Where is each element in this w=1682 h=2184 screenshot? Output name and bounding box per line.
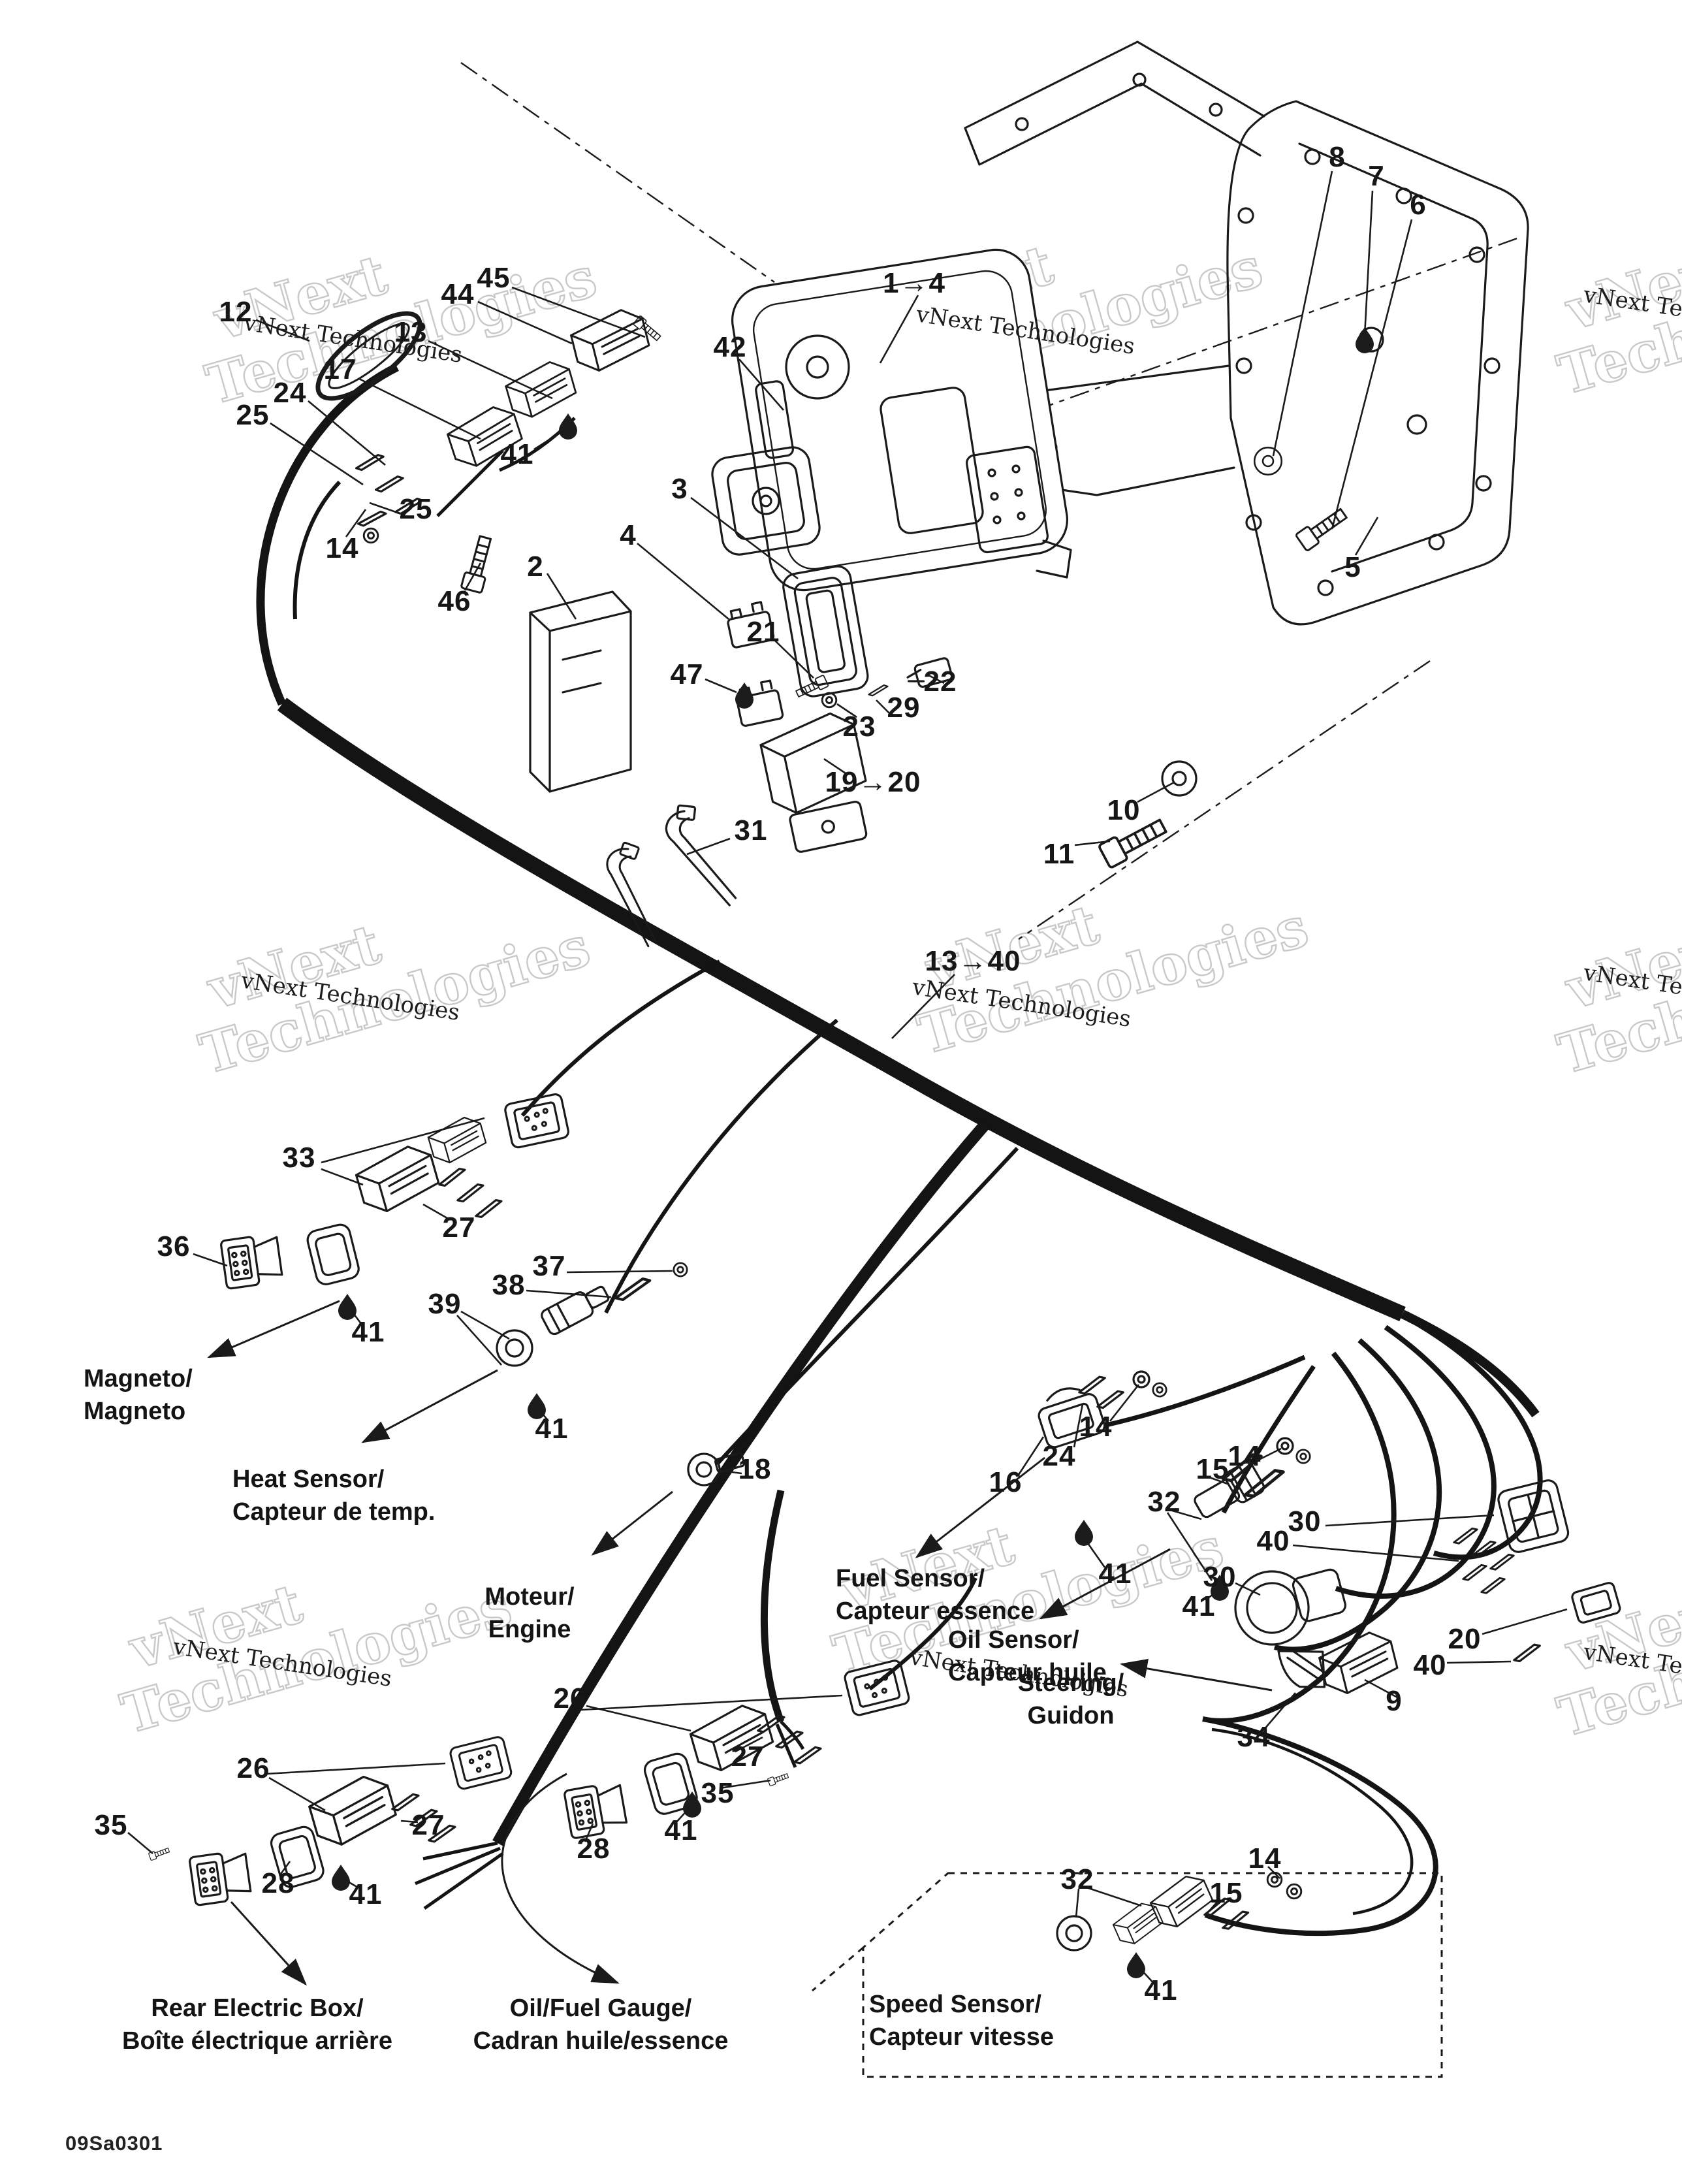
terminal-29 bbox=[867, 684, 889, 697]
callout-24: 24 bbox=[274, 377, 307, 409]
callout-12: 12 bbox=[219, 296, 253, 329]
label-magneto-line1: Magneto/ bbox=[84, 1362, 193, 1395]
callout-2: 2 bbox=[527, 551, 543, 583]
callout-21: 21 bbox=[747, 616, 780, 649]
connector-30-round bbox=[1227, 1554, 1350, 1652]
grease-drop-41f bbox=[1075, 1520, 1093, 1546]
callout-41s: 41 bbox=[1145, 1974, 1178, 2007]
rear-box-plate-28 bbox=[189, 1850, 251, 1905]
callout-3: 3 bbox=[671, 473, 688, 506]
rear-box-connector-26 bbox=[306, 1771, 400, 1850]
label-fuel-sensor: Fuel Sensor/ Capteur essence bbox=[836, 1562, 1034, 1628]
callout-8: 8 bbox=[1329, 141, 1345, 174]
callout-40b: 40 bbox=[1414, 1649, 1447, 1682]
callout-20: 20 bbox=[1448, 1623, 1482, 1656]
label-rear-electric-box-line1: Rear Electric Box/ bbox=[122, 1992, 392, 2025]
rear-box-cover bbox=[449, 1736, 513, 1790]
callout-46: 46 bbox=[438, 585, 471, 618]
label-fuel-sensor-line2: Capteur essence bbox=[836, 1595, 1034, 1628]
callout-14: 14 bbox=[326, 532, 359, 565]
label-engine: Moteur/ Engine bbox=[484, 1581, 574, 1646]
callout-15: 15 bbox=[1196, 1453, 1230, 1486]
label-rear-electric-box: Rear Electric Box/ Boîte électrique arri… bbox=[122, 1992, 392, 2057]
callout-35r: 35 bbox=[95, 1809, 128, 1842]
seal-33 bbox=[306, 1223, 360, 1286]
callout-34: 34 bbox=[1237, 1721, 1271, 1754]
callout-47: 47 bbox=[671, 658, 704, 691]
callout-31: 31 bbox=[735, 814, 768, 847]
label-engine-line1: Moteur/ bbox=[484, 1581, 574, 1613]
washer-8 bbox=[1254, 447, 1282, 475]
callout-38: 38 bbox=[492, 1269, 526, 1302]
washer-10 bbox=[1162, 762, 1196, 795]
label-heat-sensor: Heat Sensor/ Capteur de temp. bbox=[232, 1463, 435, 1528]
connector-33b bbox=[426, 1114, 488, 1166]
callout-4: 4 bbox=[620, 519, 636, 552]
callout-19-20: 19→20 bbox=[825, 766, 921, 799]
callout-44: 44 bbox=[441, 278, 475, 311]
label-heat-sensor-line1: Heat Sensor/ bbox=[232, 1463, 435, 1496]
callout-22: 22 bbox=[924, 666, 957, 698]
grease-drop-47 bbox=[735, 682, 754, 709]
bolt-6 bbox=[1295, 505, 1349, 551]
callout-14s: 14 bbox=[1248, 1842, 1282, 1875]
callout-27r: 27 bbox=[412, 1809, 445, 1842]
callout-36: 36 bbox=[157, 1230, 191, 1263]
nut-37 bbox=[674, 1263, 687, 1276]
terminal-40 bbox=[1512, 1643, 1542, 1663]
callout-28r: 28 bbox=[262, 1867, 295, 1900]
callout-14b: 14 bbox=[1228, 1440, 1261, 1473]
callout-13: 13 bbox=[394, 316, 428, 349]
callout-33: 33 bbox=[283, 1142, 316, 1174]
exploded-parts-diagram: vNextTechnologies vNextTechnologies vNex… bbox=[0, 0, 1682, 2184]
callout-18: 18 bbox=[738, 1453, 772, 1486]
callout-27: 27 bbox=[443, 1212, 476, 1244]
callout-17: 17 bbox=[324, 353, 357, 386]
callout-1-4: 1→4 bbox=[883, 267, 945, 300]
callout-32s: 32 bbox=[1061, 1863, 1094, 1896]
callout-28g: 28 bbox=[577, 1833, 611, 1865]
callout-14a: 14 bbox=[1079, 1411, 1113, 1443]
label-oil-fuel-gauge-line2: Cadran huile/essence bbox=[473, 2025, 729, 2057]
label-speed-sensor: Speed Sensor/ Capteur vitesse bbox=[869, 1988, 1054, 2053]
drawing-code: 09Sa0301 bbox=[65, 2132, 163, 2155]
callout-7: 7 bbox=[1368, 160, 1384, 193]
callout-27g: 27 bbox=[731, 1741, 765, 1773]
callout-15s: 15 bbox=[1210, 1877, 1243, 1910]
connector-13 bbox=[503, 357, 579, 421]
gauge-plate-28 bbox=[564, 1781, 628, 1839]
label-engine-line2: Engine bbox=[484, 1613, 574, 1646]
label-steering-line1: Steering/ bbox=[1018, 1667, 1124, 1699]
callout-13-40: 13→40 bbox=[925, 945, 1021, 978]
cable-tie-31 bbox=[659, 804, 744, 905]
label-steering: Steering/ Guidon bbox=[1018, 1667, 1124, 1732]
connector-36 bbox=[221, 1233, 283, 1289]
callout-24b: 24 bbox=[1043, 1440, 1076, 1473]
callout-45: 45 bbox=[477, 262, 511, 295]
label-magneto: Magneto/ Magneto bbox=[84, 1362, 193, 1428]
label-heat-sensor-line2: Capteur de temp. bbox=[232, 1496, 435, 1528]
nut-14b bbox=[1277, 1438, 1293, 1454]
callout-42: 42 bbox=[714, 331, 747, 364]
callout-26r: 26 bbox=[237, 1752, 270, 1785]
label-magneto-line2: Magneto bbox=[84, 1395, 193, 1428]
callout-30: 30 bbox=[1288, 1505, 1322, 1538]
callout-29: 29 bbox=[887, 692, 921, 724]
label-oil-sensor-line1: Oil Sensor/ bbox=[948, 1624, 1107, 1656]
label-oil-fuel-gauge: Oil/Fuel Gauge/ Cadran huile/essence bbox=[473, 1992, 729, 2057]
label-speed-sensor-line2: Capteur vitesse bbox=[869, 2021, 1054, 2053]
callout-41i: 41 bbox=[665, 1814, 698, 1847]
nut-23 bbox=[822, 693, 836, 707]
grease-drop-41j bbox=[332, 1865, 350, 1891]
callout-11: 11 bbox=[1043, 838, 1075, 871]
grease-drop-41 bbox=[559, 413, 577, 440]
label-rear-electric-box-line2: Boîte électrique arrière bbox=[122, 2025, 392, 2057]
callout-16: 16 bbox=[989, 1466, 1023, 1499]
screw-35 bbox=[767, 1772, 789, 1786]
callout-41h: 41 bbox=[535, 1413, 569, 1445]
bolt-46 bbox=[461, 535, 496, 593]
callout-41m: 41 bbox=[352, 1316, 385, 1349]
label-fuel-sensor-line1: Fuel Sensor/ bbox=[836, 1562, 1034, 1595]
callout-25b: 25 bbox=[400, 493, 433, 526]
label-steering-line2: Guidon bbox=[1018, 1699, 1124, 1732]
callout-10: 10 bbox=[1107, 794, 1141, 827]
callout-37: 37 bbox=[533, 1250, 566, 1283]
callout-9: 9 bbox=[1386, 1685, 1402, 1718]
callout-40: 40 bbox=[1257, 1525, 1290, 1558]
callout-25: 25 bbox=[236, 399, 270, 432]
nut-14 bbox=[1134, 1372, 1149, 1387]
callout-32: 32 bbox=[1148, 1486, 1181, 1518]
callout-26g: 26 bbox=[554, 1682, 587, 1715]
callout-41f: 41 bbox=[1099, 1558, 1132, 1590]
callout-41g: 41 bbox=[1182, 1590, 1216, 1623]
callout-30b: 30 bbox=[1203, 1561, 1237, 1594]
callout-35g: 35 bbox=[701, 1777, 735, 1810]
label-oil-fuel-gauge-line1: Oil/Fuel Gauge/ bbox=[473, 1992, 729, 2025]
callout-6: 6 bbox=[1410, 189, 1426, 221]
callout-39: 39 bbox=[428, 1288, 462, 1321]
callout-41j: 41 bbox=[349, 1878, 383, 1911]
label-speed-sensor-line1: Speed Sensor/ bbox=[869, 1988, 1054, 2021]
connector-33 bbox=[353, 1141, 442, 1216]
callout-41: 41 bbox=[501, 438, 534, 471]
callout-5: 5 bbox=[1344, 551, 1361, 584]
callout-23: 23 bbox=[843, 711, 876, 743]
terminal-14 bbox=[364, 528, 378, 543]
bracket-2 bbox=[530, 592, 631, 792]
grease-drop-41i bbox=[683, 1791, 701, 1818]
